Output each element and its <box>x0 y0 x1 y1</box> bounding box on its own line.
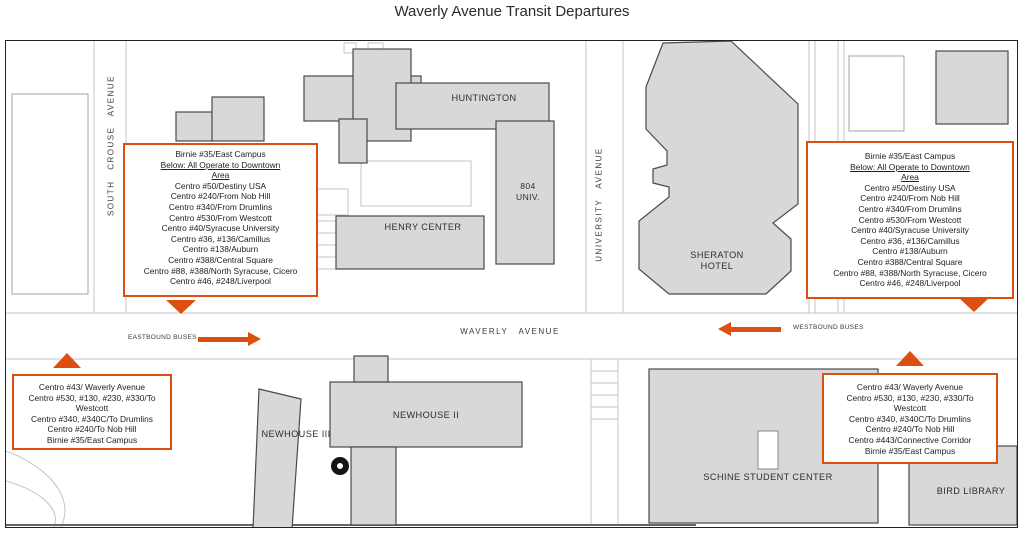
building-label-henry-center: HENRY CENTER <box>323 222 523 233</box>
stop-pointer-northwest-icon <box>166 300 196 314</box>
route-line: Birnie #35/East Campus <box>830 446 990 457</box>
route-line: Centro #530, #130, #230, #330/To Westcot… <box>830 393 990 414</box>
stop-pointer-southeast-icon <box>896 351 924 366</box>
route-info-box-southeast: Centro #43/ Waverly Avenue Centro #530, … <box>822 373 998 464</box>
sculpture-marker-icon <box>334 460 346 472</box>
building-label-schine: SCHINE STUDENT CENTER <box>668 472 868 483</box>
building-label-bird-library: BIRD LIBRARY <box>901 486 1018 497</box>
campus-map: SOUTH CROUSE AVENUE UNIVERSITY AVENUE WA… <box>5 40 1018 528</box>
route-line: Centro #240/To Nob Hill <box>830 424 990 435</box>
building-huntington-shape <box>339 119 367 163</box>
route-line: Below: All Operate to Downtown <box>824 162 996 173</box>
route-line: Centro #46, #248/Liverpool <box>824 278 996 289</box>
route-line: Centro #43/ Waverly Avenue <box>830 382 990 393</box>
building-small-a-shape <box>176 112 213 141</box>
building-west-block-shape <box>12 94 88 294</box>
route-line: Centro #530, #130, #230, #330/To Westcot… <box>16 393 168 414</box>
route-line: Centro #340, #340C/To Drumlins <box>830 414 990 425</box>
route-line: Centro #46, #248/Liverpool <box>135 276 306 287</box>
street-label-waverly: WAVERLY AVENUE <box>410 327 610 336</box>
route-line: Below: All Operate to Downtown <box>135 160 306 171</box>
building-label-newhouse-iii: NEWHOUSE III <box>221 429 371 440</box>
route-info-box-southwest: Centro #43/ Waverly Avenue Centro #530, … <box>12 374 172 450</box>
route-line: Area <box>824 172 996 183</box>
building-northeast-small-shape <box>849 56 904 131</box>
schine-courtyard-shape <box>758 431 778 469</box>
route-line: Centro #388/Central Square <box>824 257 996 268</box>
route-line: Centro #443/Connective Corridor <box>830 435 990 446</box>
westbound-arrowhead-icon <box>718 322 731 336</box>
building-label-hotel: HOTEL <box>647 261 787 272</box>
route-line: Birnie #35/East Campus <box>16 435 168 446</box>
building-newhouse-wing-shape <box>351 447 396 525</box>
route-line: Centro #240/To Nob Hill <box>16 424 168 435</box>
eastbound-arrowhead-icon <box>248 332 261 346</box>
stop-pointer-southwest-icon <box>53 353 81 368</box>
eastbound-arrow-icon <box>198 337 248 342</box>
route-line: Centro #40/Syracuse University <box>824 225 996 236</box>
route-line: Centro #240/From Nob Hill <box>824 193 996 204</box>
eastbound-buses-label: EASTBOUND BUSES <box>128 334 198 341</box>
building-newhouse-iii-shape <box>253 389 301 527</box>
route-line: Centro #340/From Drumlins <box>824 204 996 215</box>
building-small-b-shape <box>212 97 264 141</box>
route-line: Centro #240/From Nob Hill <box>135 191 306 202</box>
route-info-box-northwest: Birnie #35/East Campus Below: All Operat… <box>123 143 318 297</box>
route-line: Birnie #35/East Campus <box>824 151 996 162</box>
route-line: Centro #530/From Westcott <box>135 213 306 224</box>
route-line: Centro #138/Auburn <box>824 246 996 257</box>
page-title: Waverly Avenue Transit Departures <box>0 3 1024 20</box>
building-newhouse-ii-annex-shape <box>354 356 388 382</box>
route-line: Centro #530/From Westcott <box>824 215 996 226</box>
route-line: Centro #88, #388/North Syracuse, Cicero <box>135 266 306 277</box>
route-line: Centro #50/Destiny USA <box>135 181 306 192</box>
route-line: Centro #388/Central Square <box>135 255 306 266</box>
route-line: Birnie #35/East Campus <box>135 149 306 160</box>
route-line: Centro #40/Syracuse University <box>135 223 306 234</box>
building-label-univ: UNIV. <box>498 192 558 203</box>
route-line: Centro #88, #388/North Syracuse, Cicero <box>824 268 996 279</box>
westbound-buses-label: WESTBOUND BUSES <box>793 324 868 331</box>
route-line: Area <box>135 170 306 181</box>
route-line: Centro #340, #340C/To Drumlins <box>16 414 168 425</box>
stop-pointer-northeast-icon <box>959 298 989 312</box>
street-label-south-crouse: SOUTH CROUSE AVENUE <box>107 71 116 221</box>
route-line: Centro #36, #136/Camillus <box>824 236 996 247</box>
building-label-804: 804 <box>498 181 558 192</box>
route-line: Centro #340/From Drumlins <box>135 202 306 213</box>
route-line: Centro #138/Auburn <box>135 244 306 255</box>
transit-map-page: Waverly Avenue Transit Departures <box>0 0 1024 534</box>
building-label-newhouse-ii: NEWHOUSE II <box>326 410 526 421</box>
building-label-sheraton: SHERATON <box>647 250 787 261</box>
building-label-huntington: HUNTINGTON <box>384 93 584 104</box>
street-label-university: UNIVERSITY AVENUE <box>595 130 604 280</box>
route-info-box-northeast: Birnie #35/East Campus Below: All Operat… <box>806 141 1014 299</box>
building-northeast-gray-shape <box>936 51 1008 124</box>
westbound-arrow-icon <box>731 327 781 332</box>
route-line: Centro #43/ Waverly Avenue <box>16 382 168 393</box>
route-line: Centro #36, #136/Camillus <box>135 234 306 245</box>
route-line: Centro #50/Destiny USA <box>824 183 996 194</box>
